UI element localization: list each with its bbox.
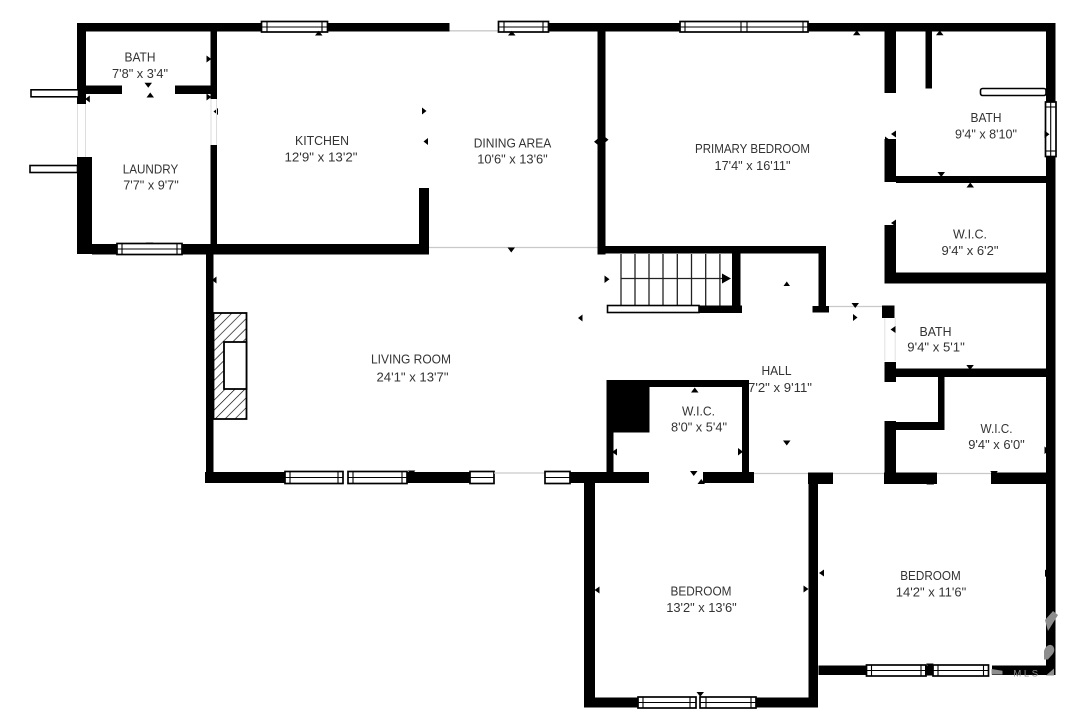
svg-text:BEDROOM: BEDROOM [671,585,732,599]
svg-text:10'6" x 13'6": 10'6" x 13'6" [477,153,548,167]
svg-text:BATH: BATH [920,325,952,339]
svg-text:BATH: BATH [971,111,1002,125]
svg-text:14'2" x 11'6": 14'2" x 11'6" [896,586,967,600]
svg-text:MLS: MLS [1013,669,1040,680]
svg-text:W.I.C.: W.I.C. [981,422,1013,436]
svg-text:7'7" x 9'7": 7'7" x 9'7" [123,179,179,193]
svg-text:7'8" x 3'4": 7'8" x 3'4" [112,67,168,81]
svg-text:LIVING ROOM: LIVING ROOM [371,353,451,367]
svg-text:24'1" x 13'7": 24'1" x 13'7" [377,371,449,385]
svg-text:W.I.C.: W.I.C. [953,228,987,242]
svg-text:BATH: BATH [125,51,156,65]
svg-text:9'4" x 8'10": 9'4" x 8'10" [955,128,1017,142]
svg-text:W.I.C.: W.I.C. [682,405,715,419]
svg-text:9'4" x 6'2": 9'4" x 6'2" [942,244,999,258]
svg-text:17'4" x 16'11": 17'4" x 16'11" [715,159,791,173]
svg-text:9'4" x 6'0": 9'4" x 6'0" [968,438,1025,452]
svg-text:PRIMARY BEDROOM: PRIMARY BEDROOM [695,142,810,156]
svg-text:BEDROOM: BEDROOM [900,569,961,583]
svg-text:DINING AREA: DINING AREA [474,137,552,151]
svg-text:KITCHEN: KITCHEN [295,134,349,148]
svg-text:7'2" x 9'11": 7'2" x 9'11" [748,381,812,395]
svg-text:LAUNDRY: LAUNDRY [123,163,179,177]
svg-text:12'9" x 13'2": 12'9" x 13'2" [285,151,358,165]
svg-text:13'2" x 13'6": 13'2" x 13'6" [666,601,737,615]
svg-text:8'0" x 5'4": 8'0" x 5'4" [671,421,727,435]
svg-text:9'4" x 5'1": 9'4" x 5'1" [907,341,965,355]
svg-text:HALL: HALL [762,364,792,378]
